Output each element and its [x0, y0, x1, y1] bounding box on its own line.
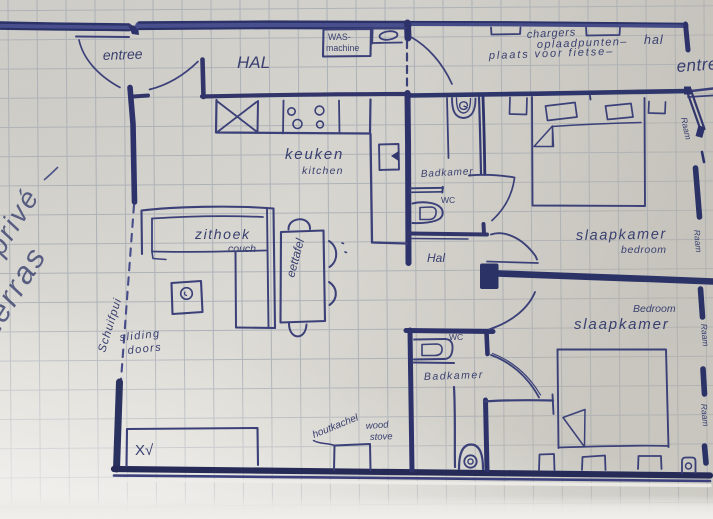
svg-text:couch: couch: [228, 243, 256, 255]
svg-text:WC: WC: [449, 332, 463, 342]
svg-text:X√: X√: [135, 442, 154, 459]
svg-text:Raam: Raam: [699, 403, 711, 426]
svg-text:HAL: HAL: [237, 53, 270, 72]
svg-text:Bedroom: Bedroom: [633, 303, 676, 315]
svg-text:zithoek: zithoek: [194, 226, 251, 242]
svg-text:kitchen: kitchen: [302, 165, 344, 177]
svg-text:machine: machine: [326, 43, 359, 53]
svg-text:entre: entre: [676, 54, 713, 76]
svg-text:Raam: Raam: [699, 323, 711, 346]
svg-text:wood: wood: [365, 419, 389, 432]
svg-text:slaapkamer: slaapkamer: [576, 226, 667, 244]
svg-text:WAS-: WAS-: [328, 32, 351, 42]
svg-text:hal: hal: [644, 33, 664, 47]
svg-text:entree: entree: [103, 46, 143, 63]
svg-text:Raam: Raam: [692, 229, 704, 252]
svg-text:Badkamer: Badkamer: [424, 369, 484, 383]
svg-text:WC: WC: [441, 195, 455, 205]
svg-text:slaapkamer: slaapkamer: [574, 316, 670, 333]
svg-text:stove: stove: [370, 431, 393, 443]
svg-text:Hal: Hal: [427, 251, 445, 265]
svg-text:bedroom: bedroom: [621, 244, 667, 256]
svg-text:keuken: keuken: [285, 146, 344, 163]
